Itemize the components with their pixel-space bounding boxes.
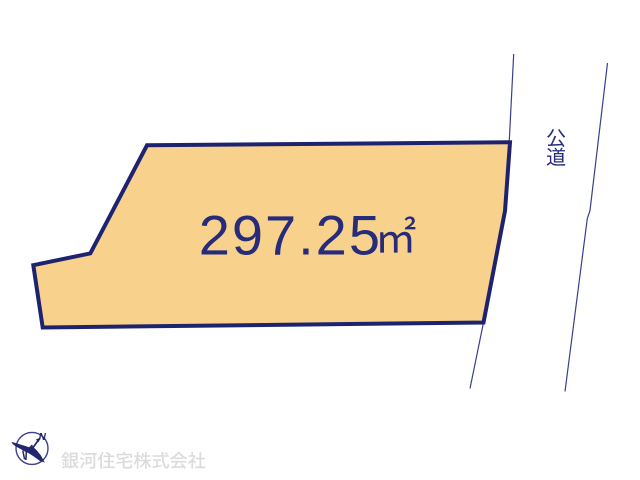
- svg-text:297.25: 297.25: [199, 204, 382, 267]
- svg-text:N: N: [39, 432, 47, 443]
